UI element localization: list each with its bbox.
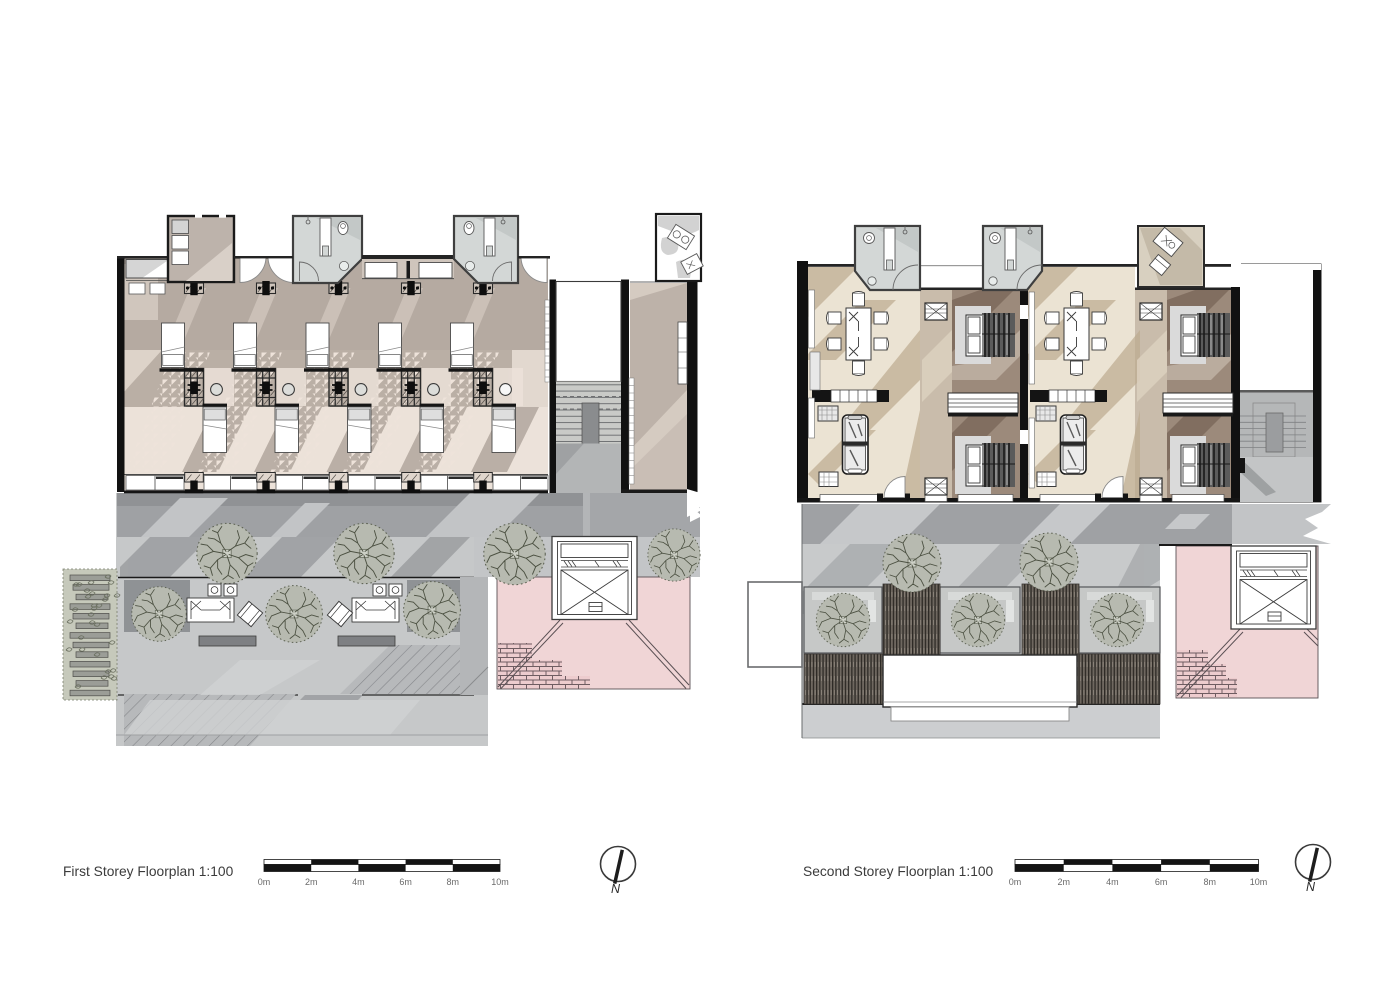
svg-text:4m: 4m bbox=[352, 877, 365, 887]
svg-text:6m: 6m bbox=[399, 877, 412, 887]
svg-text:8m: 8m bbox=[447, 877, 460, 887]
svg-text:Second Storey Floorplan 1:100: Second Storey Floorplan 1:100 bbox=[803, 864, 994, 879]
svg-text:0m: 0m bbox=[258, 877, 271, 887]
svg-text:8m: 8m bbox=[1204, 877, 1217, 887]
svg-text:10m: 10m bbox=[1250, 877, 1268, 887]
svg-text:2m: 2m bbox=[1057, 877, 1070, 887]
svg-text:N: N bbox=[611, 882, 621, 896]
svg-text:4m: 4m bbox=[1106, 877, 1119, 887]
svg-text:10m: 10m bbox=[491, 877, 509, 887]
svg-text:N: N bbox=[1306, 880, 1316, 894]
svg-text:0m: 0m bbox=[1009, 877, 1022, 887]
svg-text:First Storey Floorplan 1:100: First Storey Floorplan 1:100 bbox=[63, 864, 234, 879]
svg-text:6m: 6m bbox=[1155, 877, 1168, 887]
svg-text:2m: 2m bbox=[305, 877, 318, 887]
